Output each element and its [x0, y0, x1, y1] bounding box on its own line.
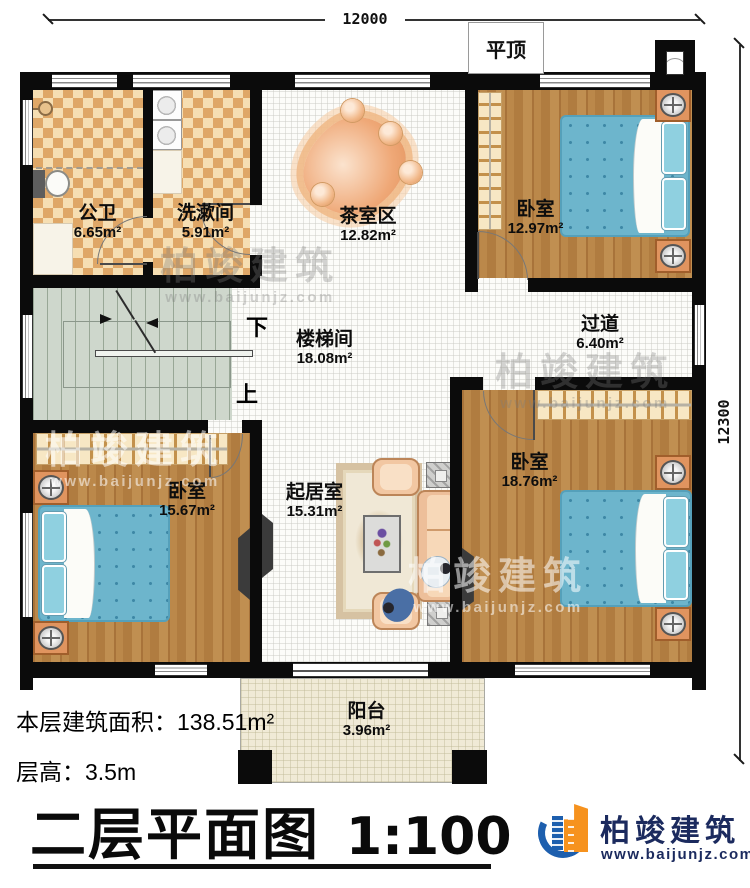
- wall-bathroom-divider: [143, 88, 153, 218]
- drawing-scale: 1:100: [346, 807, 512, 867]
- room-area: 18.08m²: [262, 351, 387, 368]
- wall-bedroom-bl-north: [20, 420, 208, 433]
- nightstand: [33, 470, 69, 505]
- window: [22, 315, 33, 398]
- nightstand: [655, 607, 691, 641]
- shower-partition: [36, 167, 143, 169]
- wall-bedroom-tr-south: [528, 278, 706, 292]
- lamp-icon: [660, 93, 686, 117]
- shower-head-icon: [38, 101, 53, 116]
- pillow: [42, 512, 66, 562]
- washroom-counter: [148, 150, 182, 194]
- wall-bedroom-br-north: [535, 377, 706, 390]
- room-label-bedroom-top-right: 卧室 12.97m²: [478, 200, 593, 237]
- bed-sheet: [633, 119, 664, 233]
- washing-machine-icon: [148, 120, 182, 150]
- stair-handrail: [95, 350, 253, 357]
- tea-stool: [311, 183, 334, 206]
- tea-stool: [341, 99, 364, 122]
- bed-sheet: [635, 494, 666, 603]
- room-name: 卧室: [478, 200, 593, 221]
- wardrobe: [36, 433, 228, 465]
- company-logo: 柏竣建筑 www.baijunjz.com: [538, 800, 743, 880]
- floor-height-label: 层高：: [16, 759, 85, 785]
- person: [421, 556, 451, 588]
- tea-stool: [379, 122, 402, 145]
- wall-bathroom-south: [20, 275, 260, 288]
- pillow: [662, 178, 686, 230]
- room-area: 15.31m²: [252, 504, 377, 521]
- bed-sheet: [64, 509, 95, 618]
- room-area: 6.40m²: [545, 336, 655, 353]
- nightstand: [655, 239, 691, 273]
- wardrobe: [537, 390, 692, 420]
- page-title: 二层平面图: [30, 790, 320, 871]
- room-label-bedroom-bottom-left: 卧室 15.67m²: [132, 482, 242, 519]
- window: [694, 305, 705, 365]
- window: [22, 100, 33, 165]
- floor-height-line: 层高：3.5m: [16, 753, 136, 787]
- room-name: 起居室: [252, 483, 377, 504]
- room-name: 过道: [545, 315, 655, 336]
- room-name: 楼梯间: [262, 330, 387, 351]
- room-label-public-bathroom: 公卫 6.65m²: [55, 204, 140, 241]
- dimension-line-right: [739, 45, 741, 761]
- door-leaf: [533, 390, 535, 440]
- nightstand: [655, 455, 691, 490]
- room-area: 6.65m²: [55, 225, 140, 242]
- logo-tower-icon: [552, 816, 563, 850]
- stairs-up-label: 上: [236, 377, 258, 409]
- title-block: 二层平面图 1:100: [30, 790, 512, 871]
- wall-bedroom-br-west: [450, 385, 462, 662]
- lamp-icon: [660, 460, 686, 485]
- window: [540, 74, 650, 88]
- floor-area-value: 138.51m²: [177, 709, 274, 735]
- room-area: 3.96m²: [304, 723, 429, 740]
- flat-roof-label: 平顶: [468, 22, 544, 74]
- room-name: 茶室区: [308, 207, 428, 228]
- room-name: 卧室: [132, 482, 242, 503]
- room-label-tea-area: 茶室区 12.82m²: [308, 207, 428, 244]
- balcony-sliding-door: [293, 663, 428, 677]
- wall-living-west: [250, 420, 262, 662]
- room-label-corridor: 过道 6.40m²: [545, 315, 655, 352]
- toilet-icon: [45, 170, 70, 197]
- room-label-balcony: 阳台 3.96m²: [304, 702, 429, 739]
- pillow: [662, 122, 686, 174]
- room-label-bedroom-bottom-right: 卧室 18.76m²: [472, 453, 587, 490]
- balcony-pillar: [238, 750, 272, 784]
- room-area: 18.76m²: [472, 474, 587, 491]
- pillow: [664, 497, 688, 547]
- room-area: 12.82m²: [308, 228, 428, 245]
- washing-machine-icon: [148, 90, 182, 120]
- lamp-icon: [38, 475, 64, 500]
- lamp-icon: [38, 626, 64, 650]
- pillow: [664, 550, 688, 600]
- floor-plan-screenshot: 12000 12300 平顶 下 上: [0, 0, 750, 888]
- wall-stub: [465, 278, 478, 292]
- nightstand: [655, 88, 691, 122]
- pillow: [42, 565, 66, 615]
- stair-arrow: [146, 318, 158, 328]
- toilet-tank: [33, 170, 45, 198]
- bed: [560, 490, 692, 607]
- lamp-icon: [660, 244, 686, 268]
- balcony-pillar: [452, 750, 487, 784]
- stair-arrow: [100, 314, 112, 324]
- floor-area-label: 本层建筑面积：: [16, 709, 177, 735]
- logo-website: www.baijunjz.com: [601, 846, 750, 863]
- room-name: 卧室: [472, 453, 587, 474]
- room-label-stairwell: 楼梯间 18.08m²: [262, 330, 387, 367]
- coffee-table: [363, 515, 401, 573]
- title-underline: [33, 864, 491, 869]
- room-name: 公卫: [55, 204, 140, 225]
- window: [22, 513, 33, 617]
- chimney: [655, 40, 695, 90]
- window: [133, 74, 230, 88]
- tv-icon: [236, 528, 250, 600]
- logo-company-name: 柏竣建筑: [600, 806, 740, 850]
- dimension-width: 12000: [325, 10, 405, 28]
- wall-stub: [250, 255, 262, 276]
- window: [295, 74, 430, 88]
- room-label-living-room: 起居室 15.31m²: [252, 483, 377, 520]
- room-name: 阳台: [304, 702, 429, 723]
- tea-stool: [399, 161, 422, 184]
- room-area: 15.67m²: [132, 503, 242, 520]
- window: [52, 74, 117, 88]
- nightstand: [33, 621, 69, 655]
- floor-area-line: 本层建筑面积：138.51m²: [16, 703, 274, 737]
- dimension-height: 12300: [715, 386, 733, 458]
- room-area: 12.97m²: [478, 221, 593, 238]
- room-label-washroom: 洗漱间 5.91m²: [158, 204, 253, 241]
- room-area: 5.91m²: [158, 225, 253, 242]
- armchair: [372, 458, 420, 496]
- window: [155, 664, 207, 676]
- lamp-icon: [660, 612, 686, 636]
- chimney-flue: [666, 51, 684, 75]
- room-name: 洗漱间: [158, 204, 253, 225]
- window: [515, 664, 650, 676]
- floor-height-value: 3.5m: [85, 759, 136, 785]
- bed: [38, 505, 170, 622]
- wall-washroom-east: [250, 88, 262, 205]
